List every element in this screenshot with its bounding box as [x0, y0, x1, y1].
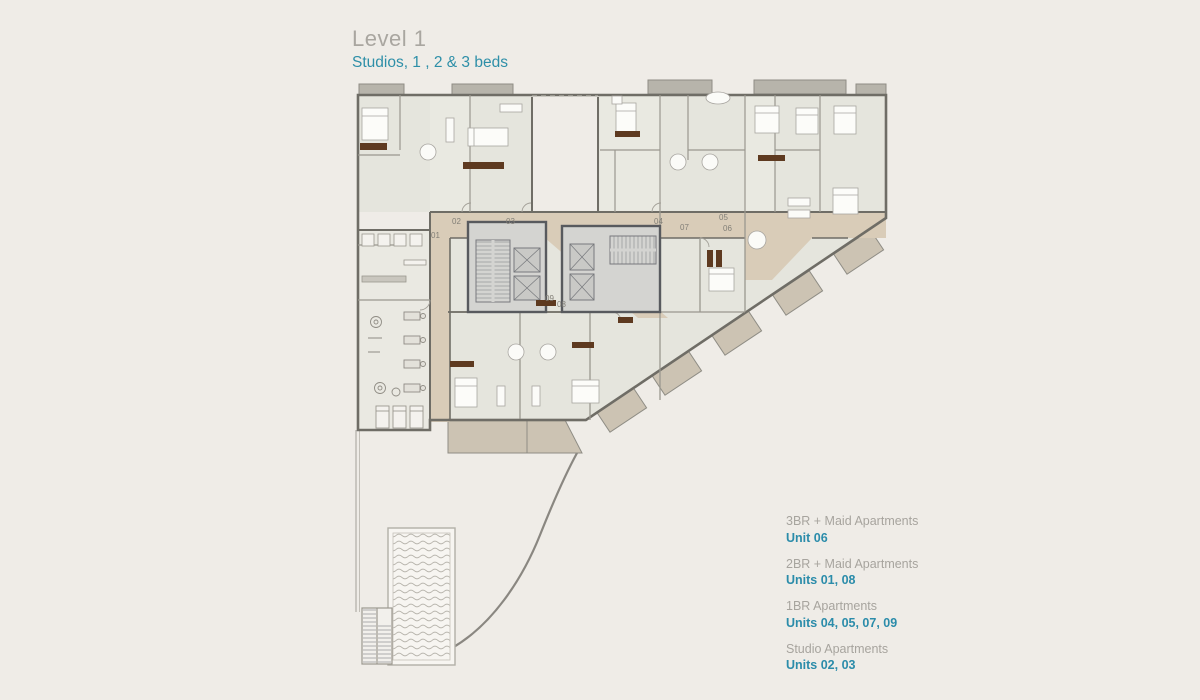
unit-label-05: 05 [719, 213, 728, 222]
legend-item: 2BR + Maid Apartments Units 01, 08 [786, 557, 918, 590]
legend-item: 1BR Apartments Units 04, 05, 07, 09 [786, 599, 918, 632]
legend-item-label: Studio Apartments [786, 642, 918, 658]
legend-item-units: Unit 06 [786, 530, 918, 547]
unit-label-04: 04 [654, 217, 663, 226]
swimming-pool [388, 528, 455, 665]
unit-label-09: 09 [545, 294, 554, 303]
legend-item-label: 1BR Apartments [786, 599, 918, 615]
unit-label-01: 01 [431, 231, 440, 240]
page-subtitle: Studios, 1 , 2 & 3 beds [352, 54, 508, 72]
floorplan-page: Level 1 Studios, 1 , 2 & 3 beds [0, 0, 1200, 700]
unit-label-07: 07 [680, 223, 689, 232]
title-block: Level 1 Studios, 1 , 2 & 3 beds [352, 26, 508, 72]
legend-item: 3BR + Maid Apartments Unit 06 [786, 514, 918, 547]
legend-item-label: 3BR + Maid Apartments [786, 514, 918, 530]
unit-label-03: 03 [506, 217, 515, 226]
page-title: Level 1 [352, 26, 508, 51]
legend-item-units: Units 02, 03 [786, 657, 918, 674]
unit-label-08: 08 [557, 300, 566, 309]
unit-label-02: 02 [452, 217, 461, 226]
floorplan-drawing: 01 02 03 04 05 06 07 08 09 [0, 0, 1200, 700]
core-stair-elevators [468, 222, 660, 312]
legend-item-units: Units 04, 05, 07, 09 [786, 615, 918, 632]
legend-item: Studio Apartments Units 02, 03 [786, 642, 918, 675]
unit-label-06: 06 [723, 224, 732, 233]
legend-item-label: 2BR + Maid Apartments [786, 557, 918, 573]
top-balconies [359, 80, 886, 95]
legend: 3BR + Maid Apartments Unit 06 2BR + Maid… [786, 514, 918, 684]
legend-item-units: Units 01, 08 [786, 572, 918, 589]
outdoor-stairs [362, 608, 392, 664]
